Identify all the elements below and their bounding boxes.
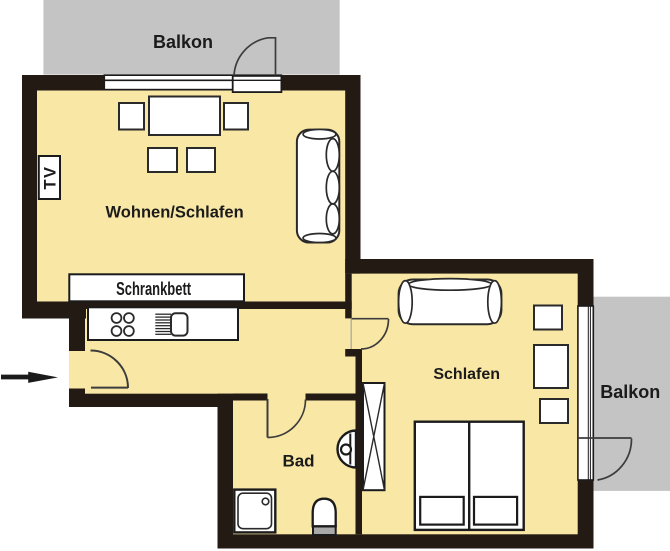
svg-text:Balkon: Balkon — [600, 382, 660, 402]
svg-text:Wohnen/Schlafen: Wohnen/Schlafen — [106, 203, 244, 221]
svg-text:TV: TV — [41, 165, 59, 189]
svg-text:Bad: Bad — [282, 452, 314, 471]
svg-text:Schrankbett: Schrankbett — [116, 279, 191, 299]
svg-text:Schlafen: Schlafen — [433, 366, 500, 383]
svg-text:Balkon: Balkon — [153, 32, 213, 52]
